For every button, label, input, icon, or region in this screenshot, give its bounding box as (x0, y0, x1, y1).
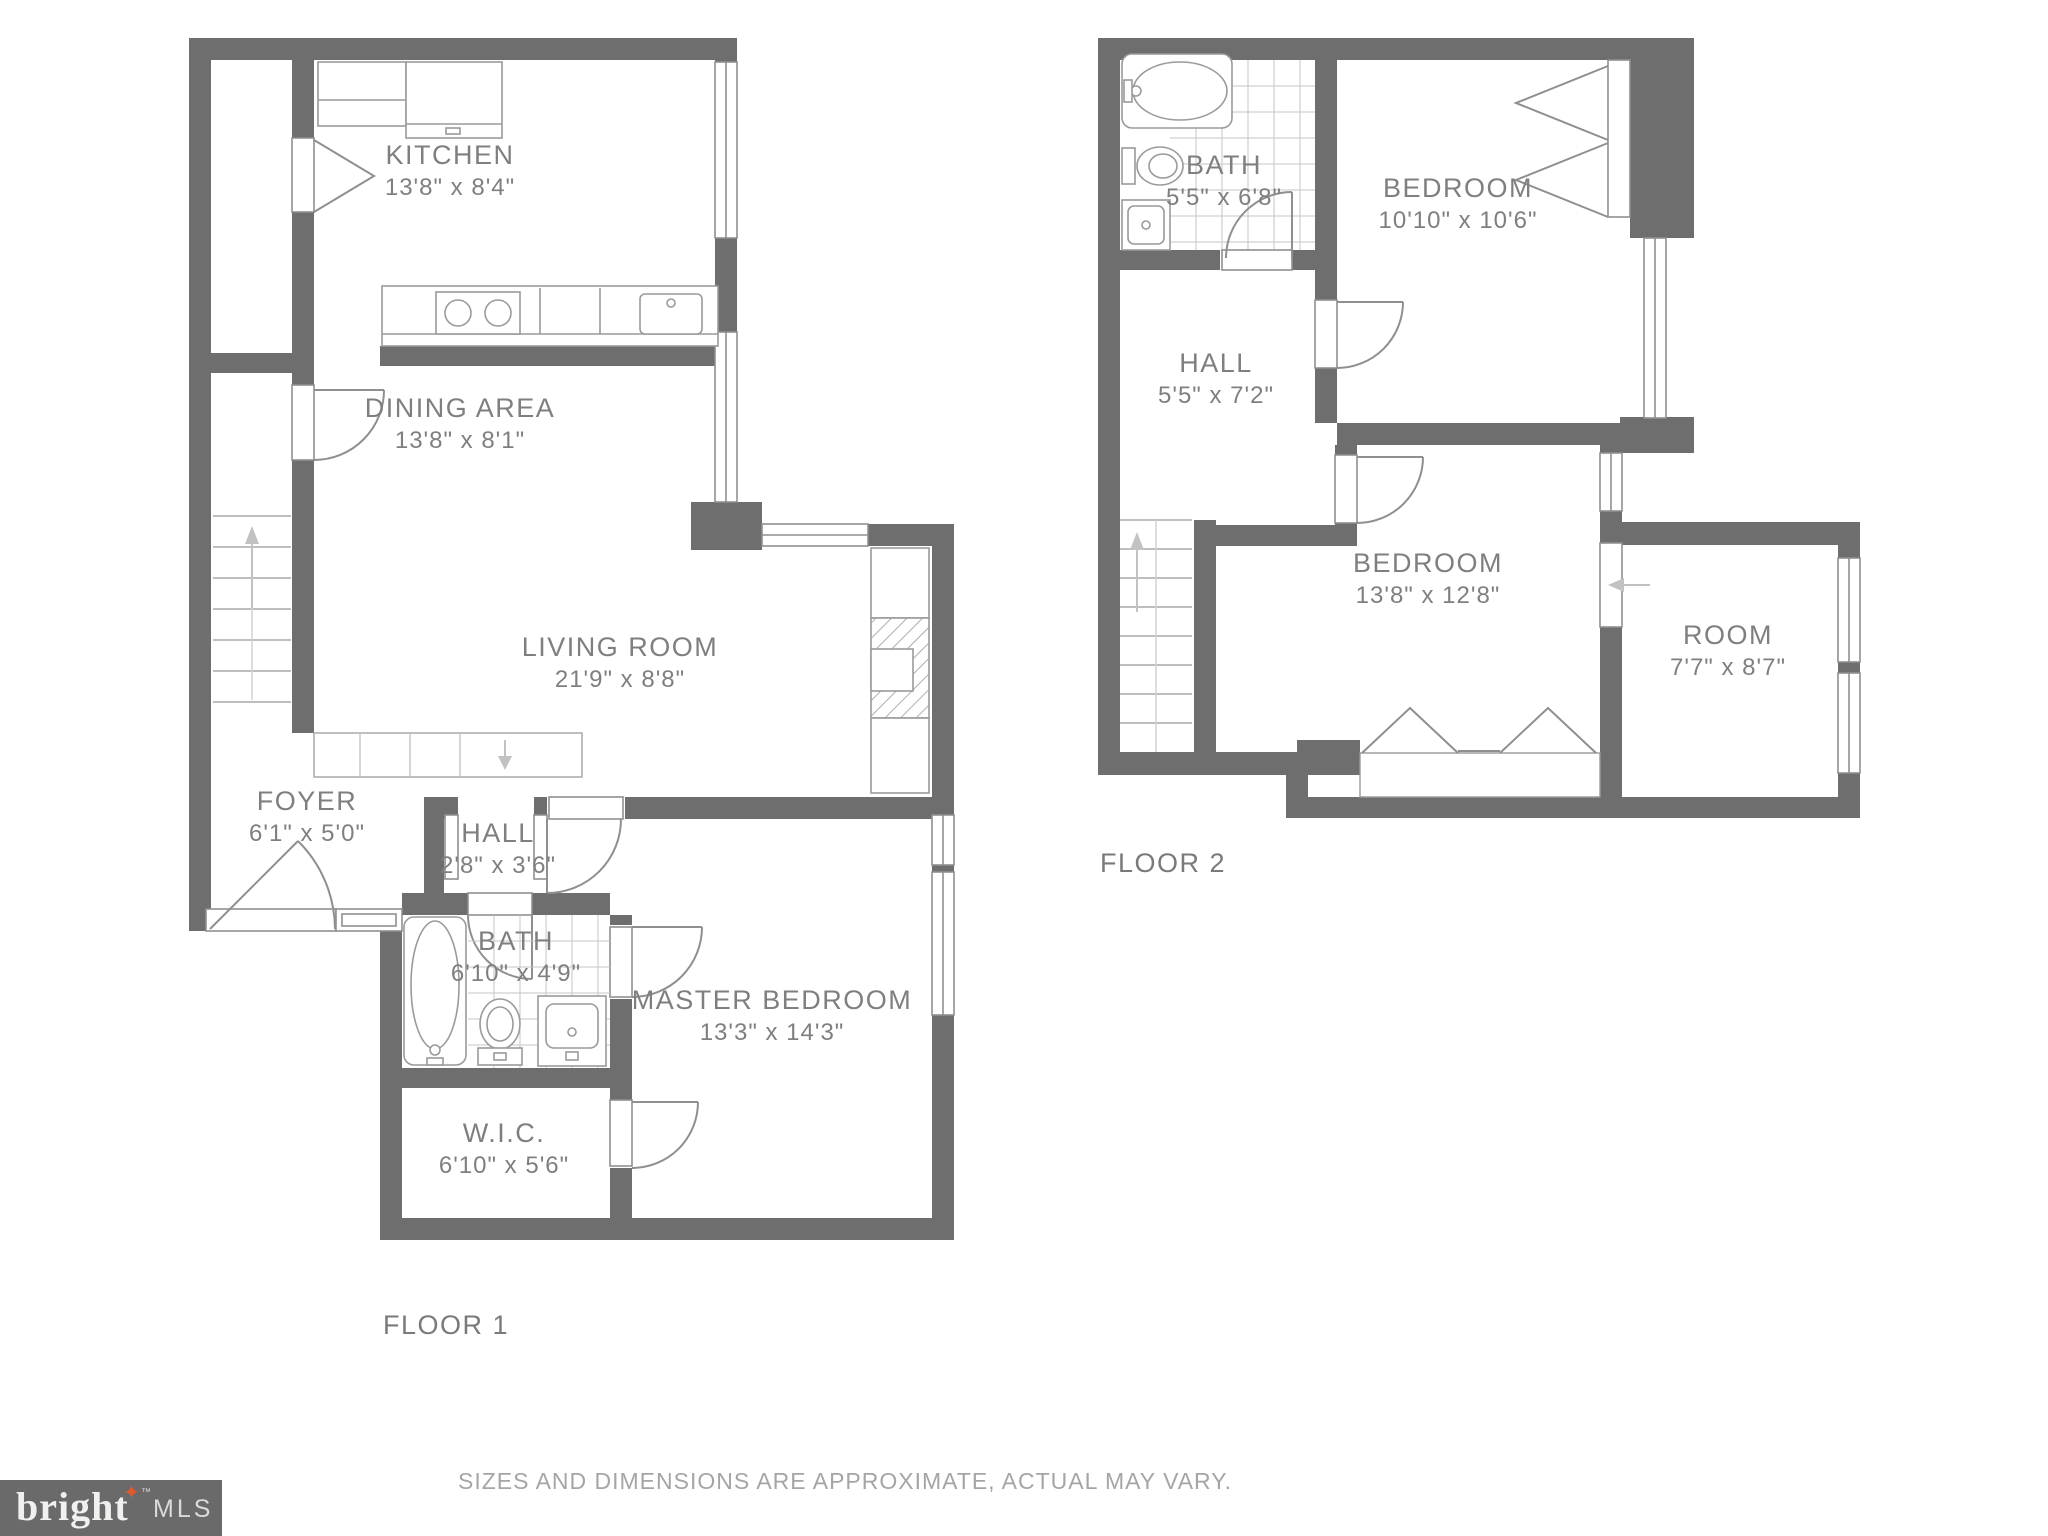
logo-tm: ™ (141, 1487, 151, 1498)
toilet-icon (1122, 148, 1135, 184)
floor2-stairs (1120, 520, 1192, 752)
room-label-bath1: BATH 6'10" x 4'9" (451, 926, 581, 988)
floorplan-drawing (0, 0, 2048, 1536)
room-label-wic: W.I.C. 6'10" x 5'6" (439, 1118, 569, 1180)
logo-brand-text: bright (16, 1483, 129, 1530)
floor1-label: FLOOR 1 (383, 1310, 509, 1341)
bright-mls-logo: bright ✦ ™ MLS (0, 1480, 222, 1536)
room-label-hall2: HALL 5'5" x 7'2" (1158, 348, 1274, 410)
room-label-hall1: HALL 2'8" x 3'6" (440, 818, 556, 880)
room-label-living: LIVING ROOM 21'9" x 8'8" (522, 632, 719, 694)
floor2-label: FLOOR 2 (1100, 848, 1226, 879)
room-label-bedroom2: BEDROOM 13'8" x 12'8" (1353, 548, 1503, 610)
disclaimer-text: SIZES AND DIMENSIONS ARE APPROXIMATE, AC… (458, 1468, 1232, 1495)
upper-cabinet (318, 62, 406, 126)
room-label-master-bedroom: MASTER BEDROOM 13'3" x 14'3" (632, 985, 913, 1047)
room-label-room: ROOM 7'7" x 8'7" (1670, 620, 1786, 682)
fireplace-icon (871, 548, 929, 793)
bedroom2-closet (1360, 708, 1600, 797)
stairs-up-arrow-icon (245, 526, 259, 608)
floorplan-page: KITCHEN 13'8" x 8'4" DINING AREA 13'8" x… (0, 0, 2048, 1536)
refrigerator (406, 62, 502, 138)
logo-suffix-text: MLS (153, 1495, 213, 1524)
logo-star-icon: ✦ (123, 1480, 140, 1505)
stairs-up-arrow-icon (1130, 532, 1144, 612)
kitchen-fixtures (318, 62, 718, 346)
floor2-windows (1600, 238, 1860, 773)
room-label-bedroom1: BEDROOM 10'10" x 10'6" (1379, 173, 1538, 235)
room-label-bath2: BATH 5'5" x 6'8" (1166, 150, 1282, 212)
room-label-dining: DINING AREA 13'8" x 8'1" (365, 393, 556, 455)
closet-bifold-door (314, 140, 374, 212)
room-label-foyer: FOYER 6'1" x 5'0" (249, 786, 365, 848)
room-label-kitchen: KITCHEN 13'8" x 8'4" (385, 140, 515, 202)
